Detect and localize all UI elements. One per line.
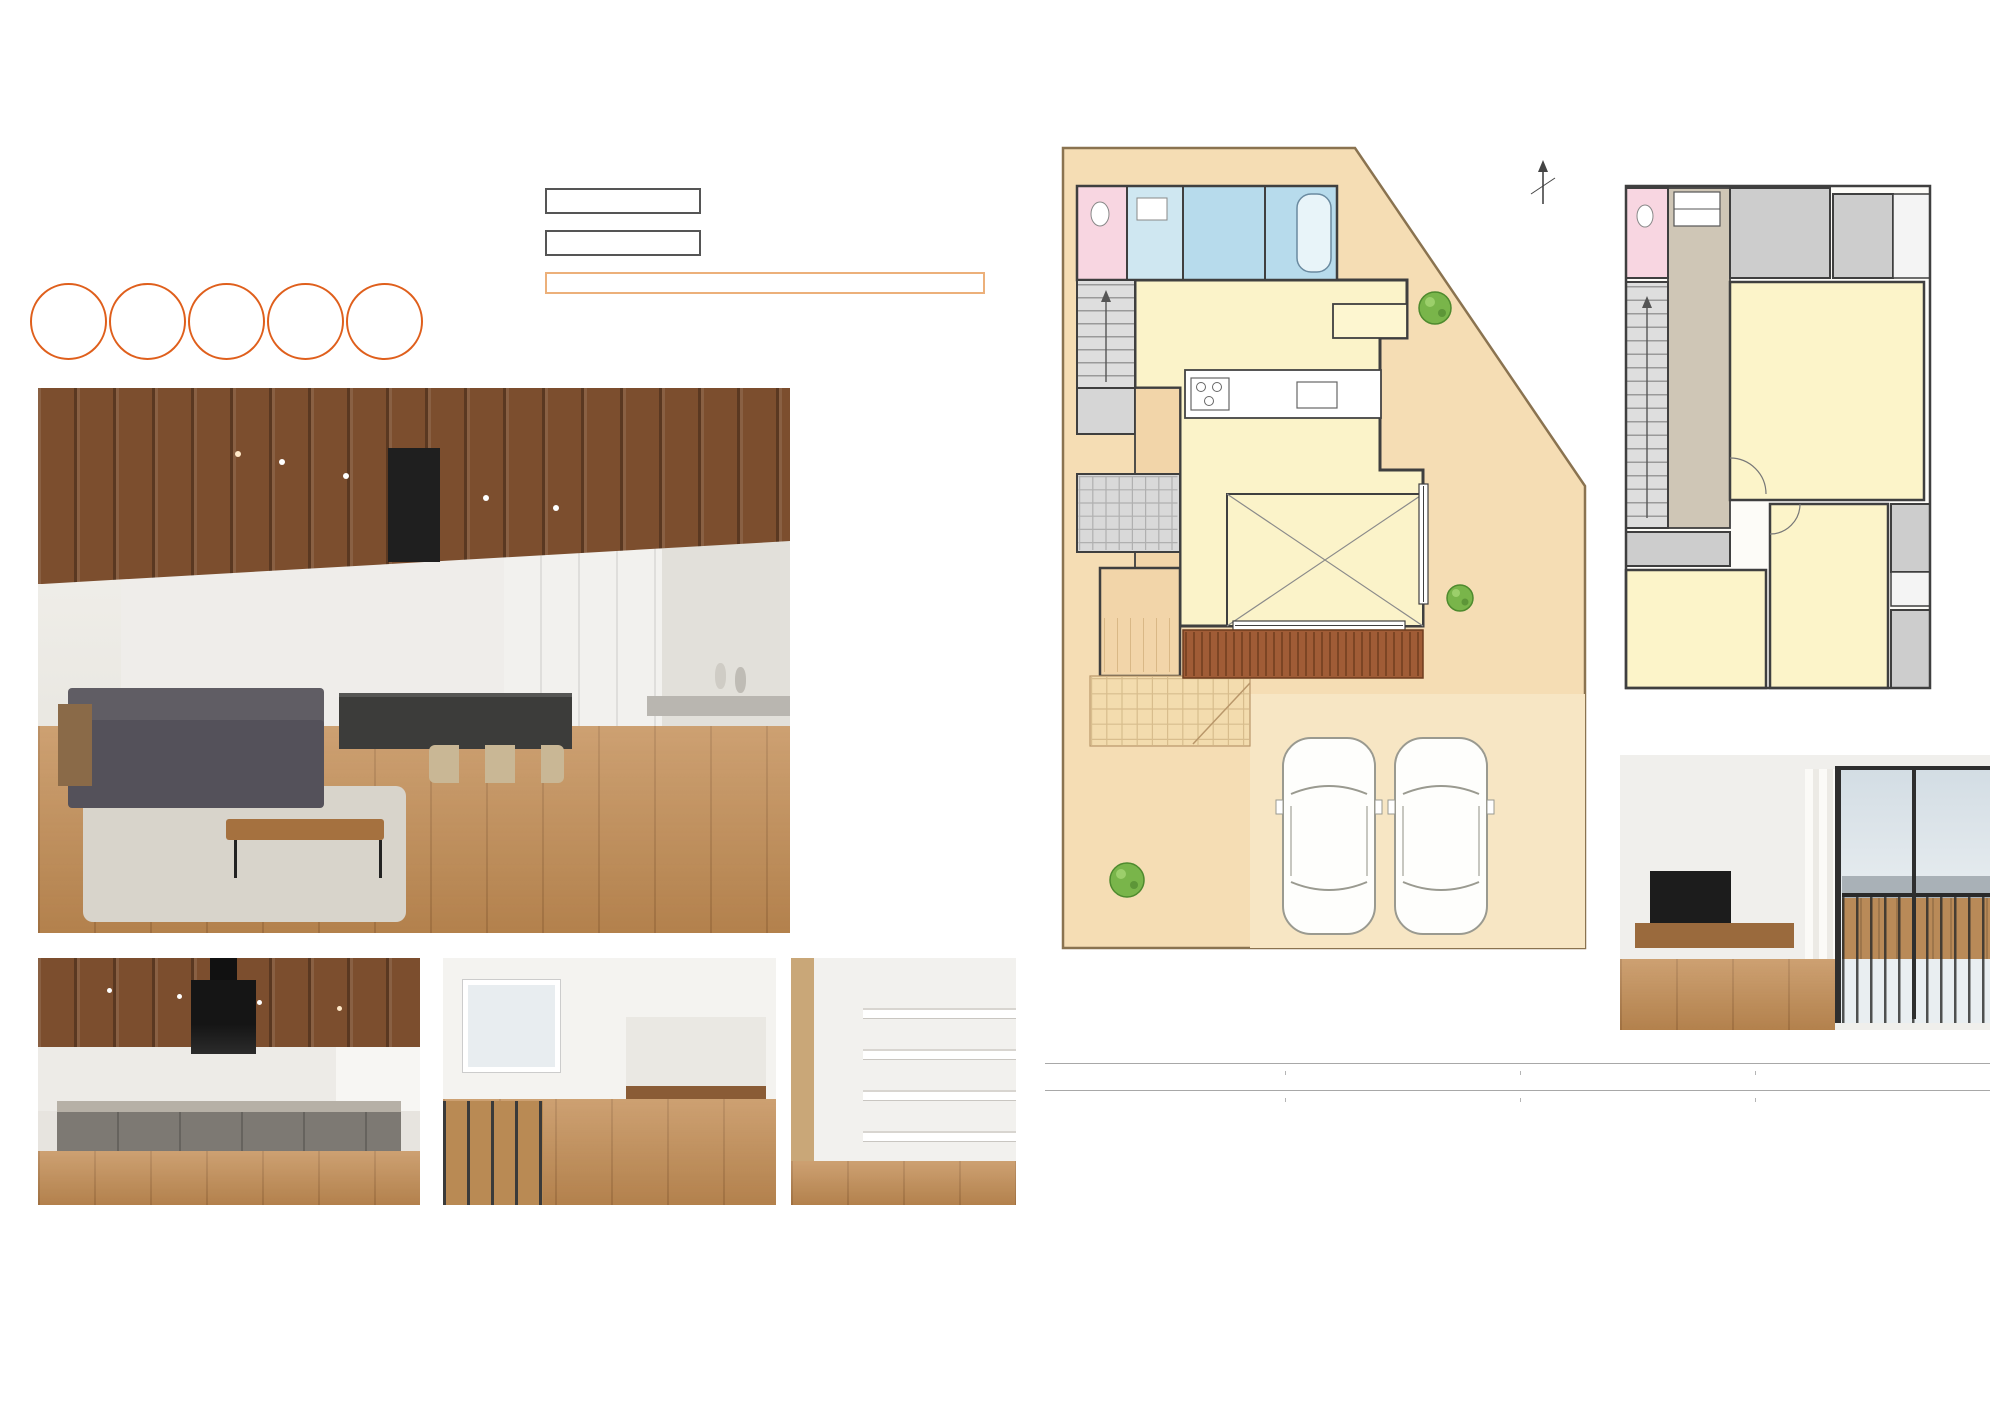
photo-bench — [647, 696, 790, 716]
photo-stools — [429, 745, 564, 783]
badge-wind-grade2 — [188, 283, 265, 360]
cl-bottom-room — [1626, 532, 1730, 566]
west-room-67 — [1730, 282, 1924, 500]
photo-range-hood — [191, 980, 256, 1054]
floorplan-1f — [1045, 138, 1590, 950]
photo-downlights — [279, 459, 285, 465]
porch — [1090, 676, 1250, 746]
toilet-room — [1077, 186, 1127, 280]
fcl-room — [1730, 188, 1830, 278]
dressing-room — [1183, 186, 1265, 280]
wcl-top-room — [1891, 504, 1930, 572]
photo-kitchen-island — [339, 693, 572, 749]
sink-icon — [1297, 382, 1337, 408]
photo-downlights — [107, 988, 112, 993]
window-bay — [1891, 572, 1930, 606]
toilet-bowl-icon — [1091, 202, 1109, 226]
tree-icon — [1447, 585, 1473, 611]
flyer-sheet — [0, 0, 2000, 1414]
photo-coffee-table — [226, 819, 384, 841]
equipment-anshin-label — [545, 230, 701, 256]
car-icon — [1388, 738, 1494, 934]
pantry-room — [1333, 304, 1407, 338]
tree-icon — [1110, 863, 1144, 897]
badge-fire-resistant — [267, 283, 344, 360]
area-item-land — [1058, 952, 1330, 982]
photo-counter — [57, 1112, 401, 1152]
area-item-1f-floor — [1058, 1012, 1330, 1042]
bathtub-icon — [1297, 194, 1331, 272]
freespace-photo — [443, 958, 776, 1205]
photo-tv-console — [1635, 923, 1794, 948]
feature-cell-rebuild-guarantee — [1520, 1071, 1755, 1075]
feature-cell-technostructure — [1045, 1071, 1285, 1075]
car-icon — [1276, 738, 1382, 934]
badge-row — [30, 283, 423, 360]
features-row-1 — [1045, 1063, 1990, 1084]
daily-comfort-box — [545, 272, 985, 294]
area-item-spacer — [1330, 982, 1630, 1012]
badge-seismic-grade3 — [109, 283, 186, 360]
floorplan-2f — [1618, 168, 1938, 728]
area-item-construction — [1058, 982, 1330, 1012]
feature-cell-water-tank — [1520, 1098, 1755, 1102]
photo-wood-floor — [791, 1161, 1016, 1205]
window-bay — [1893, 194, 1930, 278]
anshin-block — [545, 188, 1005, 294]
anshin-equipment-row — [545, 230, 1005, 256]
cl-top-room — [1833, 194, 1893, 278]
photo-window — [463, 980, 560, 1072]
area-item-2f-floor — [1330, 1012, 1630, 1042]
structure-anshin-label — [545, 188, 701, 214]
feature-cell-smart-el-line — [1285, 1098, 1520, 1102]
hall-2f — [1668, 188, 1730, 528]
storage-room — [1077, 388, 1135, 434]
toilet-bowl-icon — [1637, 205, 1653, 227]
kitchen-photo — [38, 958, 420, 1205]
toilet-room-2f — [1626, 188, 1668, 278]
photo-countertop — [57, 1101, 401, 1112]
photo-stair-railing — [443, 1101, 543, 1205]
washbasin-icon — [1137, 198, 1167, 220]
entrance-room — [1100, 568, 1180, 676]
photo-niche — [626, 1017, 766, 1091]
doma-photo — [791, 958, 1016, 1205]
badge-long-term-housing — [30, 283, 107, 360]
west-room-54 — [1626, 570, 1766, 688]
photo-range-hood — [388, 448, 441, 562]
north-arrow-icon — [1531, 160, 1555, 204]
tree-icon — [1419, 292, 1451, 324]
photo-shelves — [863, 978, 1016, 1161]
photo-wood-floor — [38, 1151, 420, 1205]
photo-vases — [715, 663, 726, 689]
feature-cell-60y-warranty — [1285, 1071, 1520, 1075]
anshin-structure-row — [545, 188, 1005, 214]
bedroom — [1770, 504, 1888, 688]
feature-cell-rain-tank — [1755, 1098, 1990, 1102]
photo-tv — [1650, 871, 1731, 923]
photo-wood-floor — [1620, 959, 1835, 1031]
feature-cell-ecocute — [1045, 1098, 1285, 1102]
feature-cell-solar — [1755, 1071, 1990, 1075]
photo-sofa-arm — [58, 704, 93, 786]
wcl-bottom-room — [1891, 610, 1930, 688]
balcony-photo — [1620, 755, 1990, 1030]
photo-sofa — [68, 720, 324, 807]
photo-table-legs — [234, 840, 383, 878]
main-living-photo — [38, 388, 790, 933]
photo-window-frame — [1912, 766, 1916, 1019]
features-table — [1045, 1063, 1990, 1111]
area-figures — [1058, 952, 1630, 1042]
features-row-2 — [1045, 1090, 1990, 1111]
badge-gx-spec — [346, 283, 423, 360]
area-item-total-floor — [1330, 952, 1630, 982]
photo-desk — [626, 1086, 766, 1098]
